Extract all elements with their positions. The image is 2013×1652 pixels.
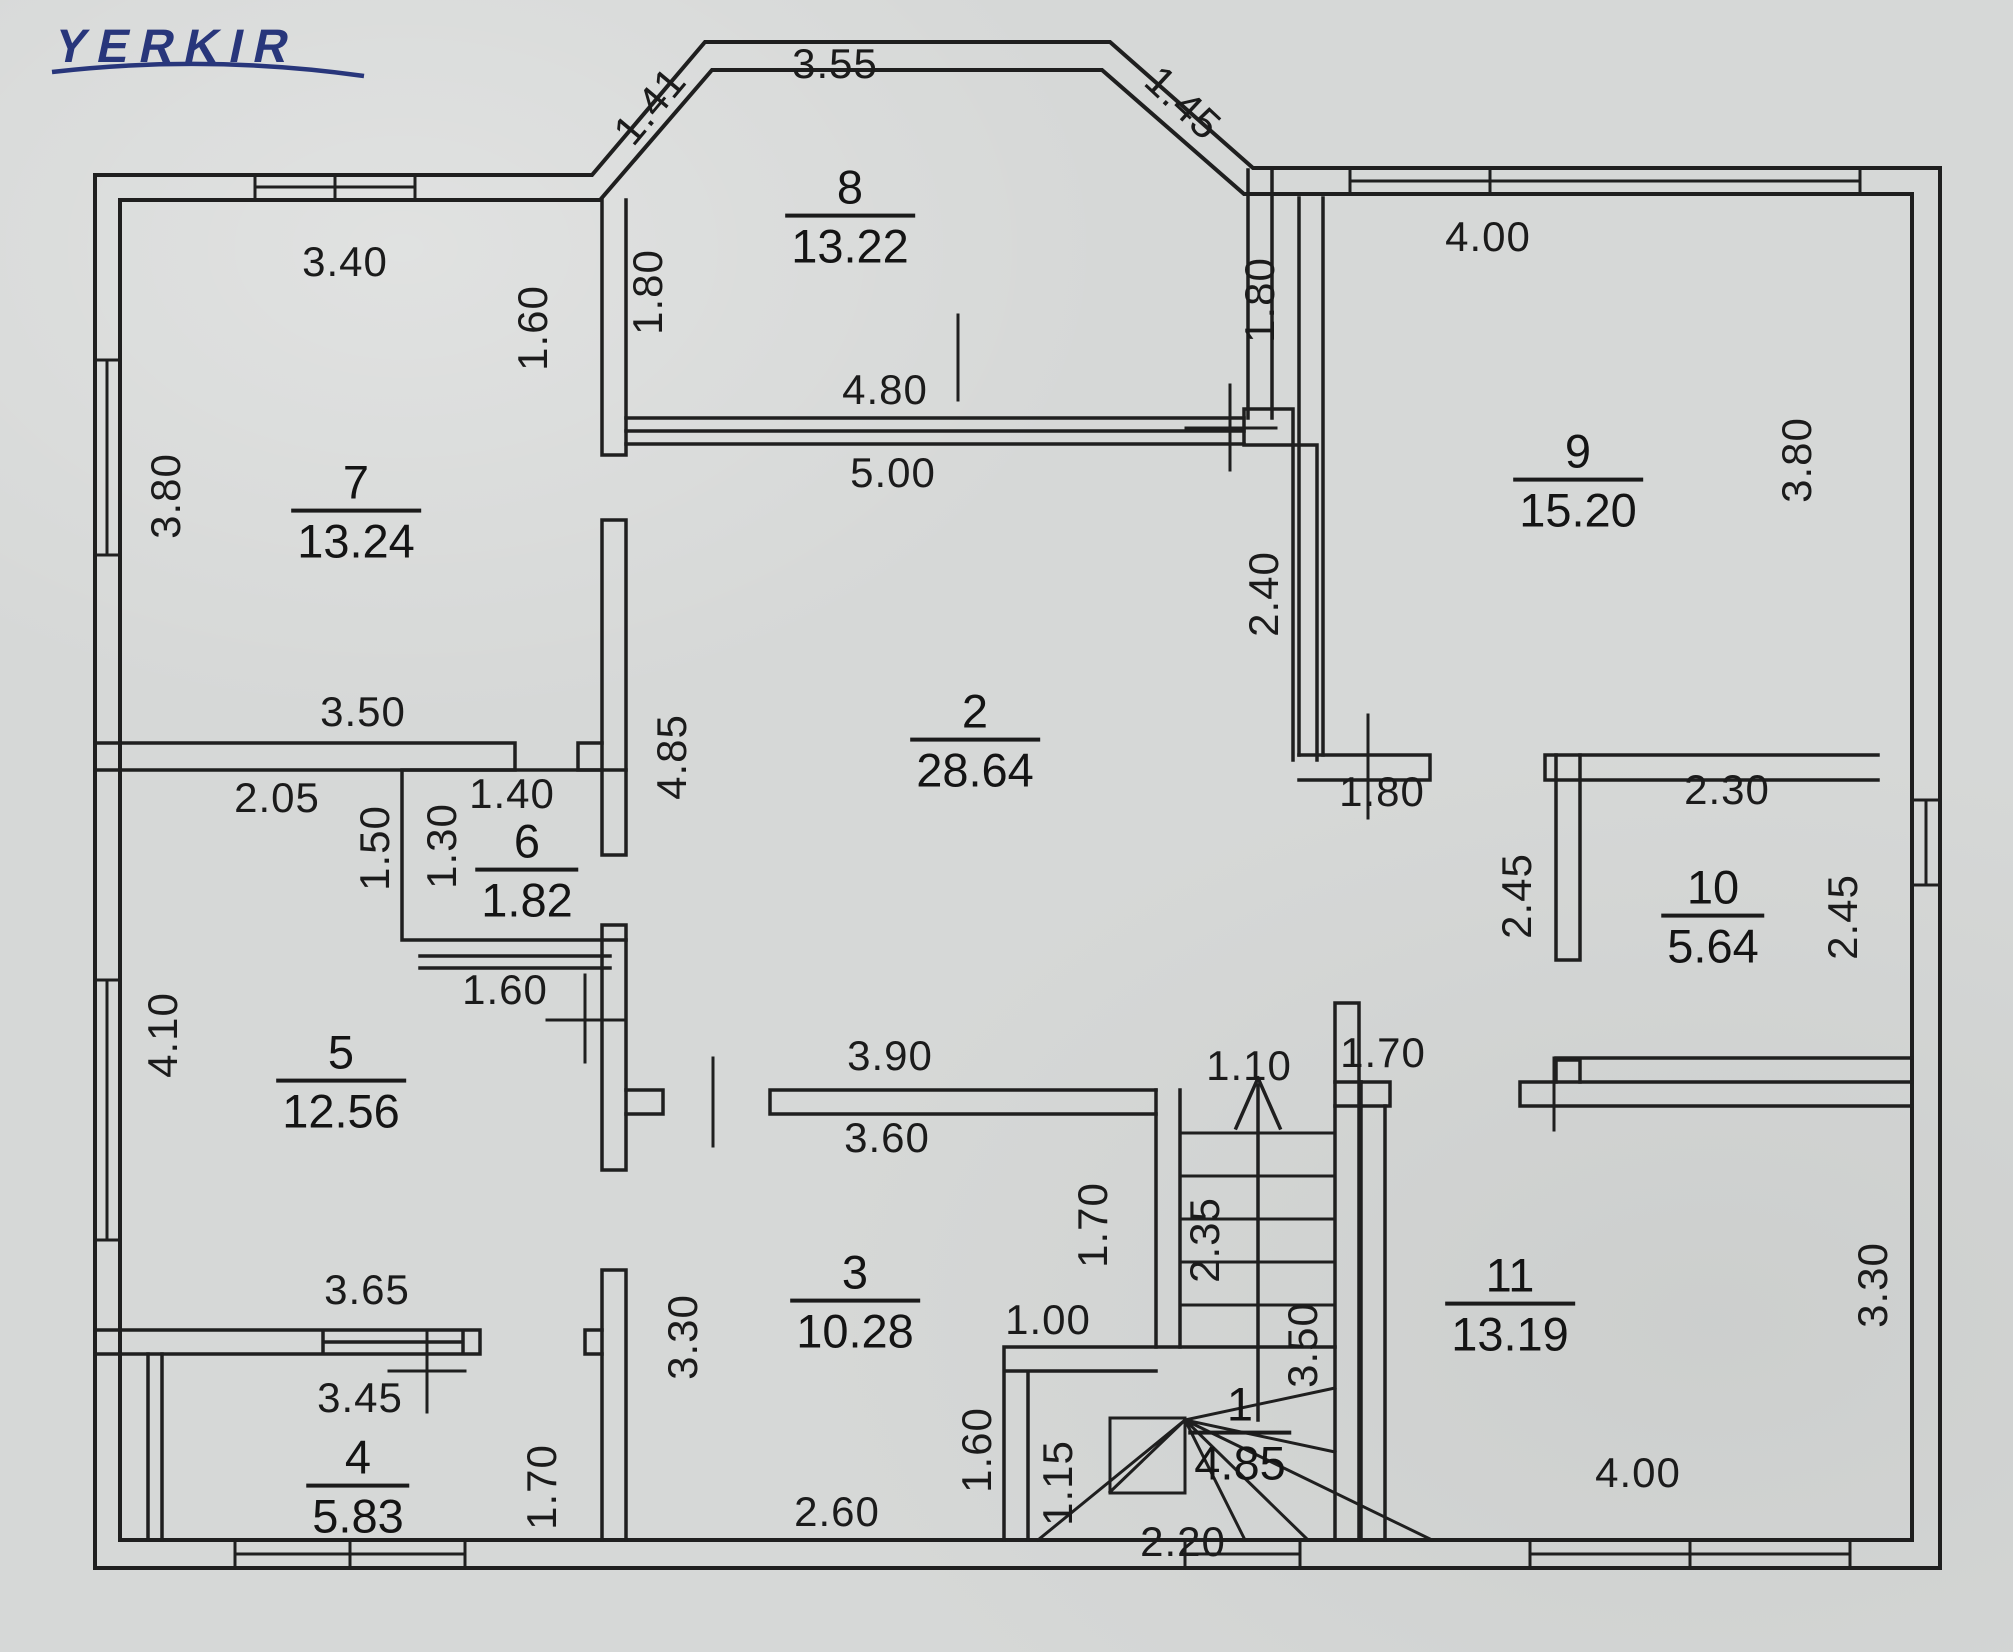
dimension-label: 1.80 (1339, 768, 1425, 816)
dimension-label: 1.00 (1005, 1296, 1091, 1344)
plan-labels-layer: 3.551.411.453.404.001.801.801.603.803.80… (0, 0, 2013, 1652)
dimension-label: 1.50 (351, 805, 399, 891)
dimension-label: 1.60 (462, 966, 548, 1014)
dimension-label: 3.45 (317, 1374, 403, 1422)
dimension-label: 1.15 (1034, 1440, 1082, 1526)
dimension-label: 3.65 (324, 1266, 410, 1314)
dimension-label: 2.05 (234, 774, 320, 822)
dimension-label: 1.80 (1236, 257, 1284, 343)
room-number: 11 (1445, 1251, 1575, 1306)
room-area: 13.19 (1445, 1305, 1575, 1361)
room-label-1: 14.85 (1188, 1380, 1291, 1491)
dimension-label: 1.70 (518, 1444, 566, 1530)
dimension-label: 2.35 (1181, 1197, 1229, 1283)
dimension-label: 1.70 (1069, 1182, 1117, 1268)
room-label-5: 512.56 (276, 1028, 406, 1139)
dimension-label: 3.80 (142, 453, 190, 539)
dimension-label: 5.00 (850, 449, 936, 497)
dimension-label: 4.80 (842, 366, 928, 414)
room-label-4: 45.83 (306, 1433, 409, 1544)
dimension-label: 3.55 (792, 40, 878, 88)
room-area: 28.64 (910, 741, 1040, 797)
room-area: 13.24 (291, 512, 421, 568)
room-area: 15.20 (1513, 481, 1643, 537)
room-label-9: 915.20 (1513, 427, 1643, 538)
room-label-6: 61.82 (475, 817, 578, 928)
room-label-10: 105.64 (1661, 863, 1764, 974)
dimension-label: 1.60 (509, 285, 557, 371)
floorplan-canvas: YERKIR 3.551.411.453.404.001.801.801.603… (0, 0, 2013, 1652)
dimension-label: 1.40 (469, 770, 555, 818)
dimension-label: 1.70 (1340, 1029, 1426, 1077)
dimension-label: 3.60 (844, 1114, 930, 1162)
room-area: 10.28 (790, 1302, 920, 1358)
dimension-label: 2.30 (1684, 766, 1770, 814)
dimension-label: 3.50 (1279, 1302, 1327, 1388)
room-area: 5.64 (1661, 917, 1764, 973)
room-area: 1.82 (475, 871, 578, 927)
dimension-label: 1.60 (953, 1407, 1001, 1493)
dimension-label: 3.30 (659, 1294, 707, 1380)
dimension-label: 2.45 (1819, 874, 1867, 960)
room-area: 5.83 (306, 1487, 409, 1543)
dimension-label: 4.10 (139, 992, 187, 1078)
dimension-label: 1.41 (604, 58, 696, 155)
dimension-label: 4.00 (1595, 1449, 1681, 1497)
dimension-label: 4.85 (648, 714, 696, 800)
dimension-label: 1.80 (624, 249, 672, 335)
room-area: 13.22 (785, 217, 915, 273)
room-number: 8 (785, 163, 915, 218)
room-number: 2 (910, 687, 1040, 742)
room-area: 12.56 (276, 1082, 406, 1138)
room-number: 10 (1661, 863, 1764, 918)
room-number: 3 (790, 1248, 920, 1303)
room-number: 9 (1513, 427, 1643, 482)
dimension-label: 3.40 (302, 238, 388, 286)
dimension-label: 2.60 (794, 1488, 880, 1536)
room-label-11: 1113.19 (1445, 1251, 1575, 1362)
dimension-label: 1.10 (1206, 1042, 1292, 1090)
dimension-label: 4.00 (1445, 213, 1531, 261)
room-number: 1 (1188, 1380, 1291, 1435)
room-number: 5 (276, 1028, 406, 1083)
dimension-label: 3.90 (847, 1032, 933, 1080)
dimension-label: 3.80 (1773, 417, 1821, 503)
room-number: 6 (475, 817, 578, 872)
dimension-label: 3.50 (320, 688, 406, 736)
dimension-label: 2.20 (1140, 1518, 1226, 1566)
room-label-7: 713.24 (291, 458, 421, 569)
dimension-label: 2.45 (1493, 853, 1541, 939)
room-label-3: 310.28 (790, 1248, 920, 1359)
room-label-8: 813.22 (785, 163, 915, 274)
room-area: 4.85 (1188, 1434, 1291, 1490)
room-label-2: 228.64 (910, 687, 1040, 798)
dimension-label: 1.45 (1135, 56, 1230, 150)
dimension-label: 3.30 (1849, 1242, 1897, 1328)
room-number: 7 (291, 458, 421, 513)
room-number: 4 (306, 1433, 409, 1488)
dimension-label: 1.30 (418, 803, 466, 889)
dimension-label: 2.40 (1240, 551, 1288, 637)
